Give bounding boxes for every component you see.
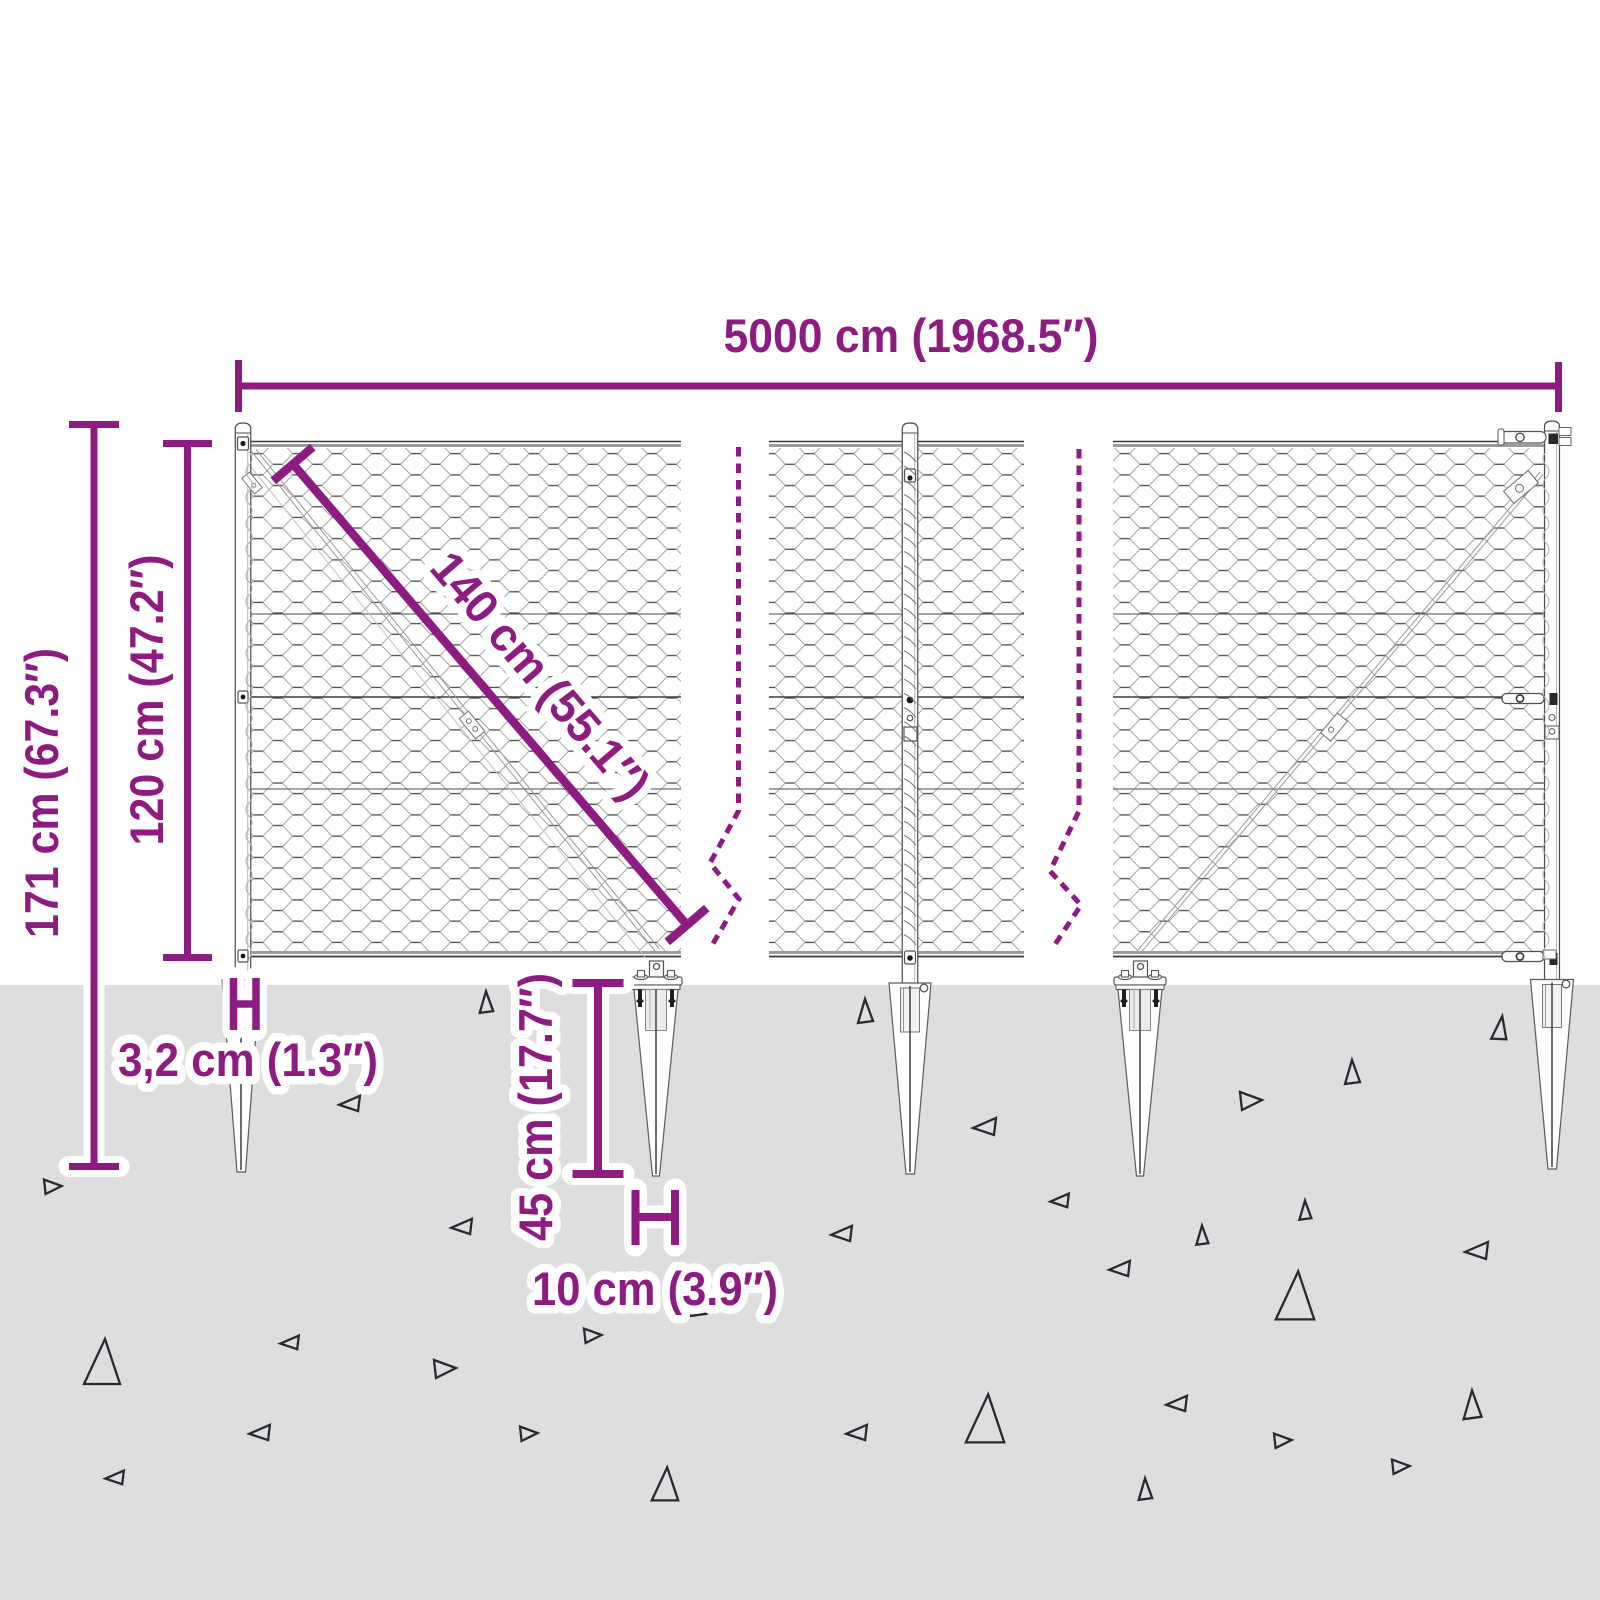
svg-text:45 cm (17.7″): 45 cm (17.7″)	[509, 973, 562, 1241]
svg-text:120 cm (47.2″): 120 cm (47.2″)	[120, 555, 173, 846]
svg-text:10 cm (3.9″): 10 cm (3.9″)	[532, 1262, 778, 1315]
svg-text:171 cm (67.3″): 171 cm (67.3″)	[15, 648, 68, 938]
svg-text:3,2 cm (1.3″): 3,2 cm (1.3″)	[118, 1033, 378, 1086]
svg-text:5000 cm (1968.5″): 5000 cm (1968.5″)	[724, 309, 1099, 362]
